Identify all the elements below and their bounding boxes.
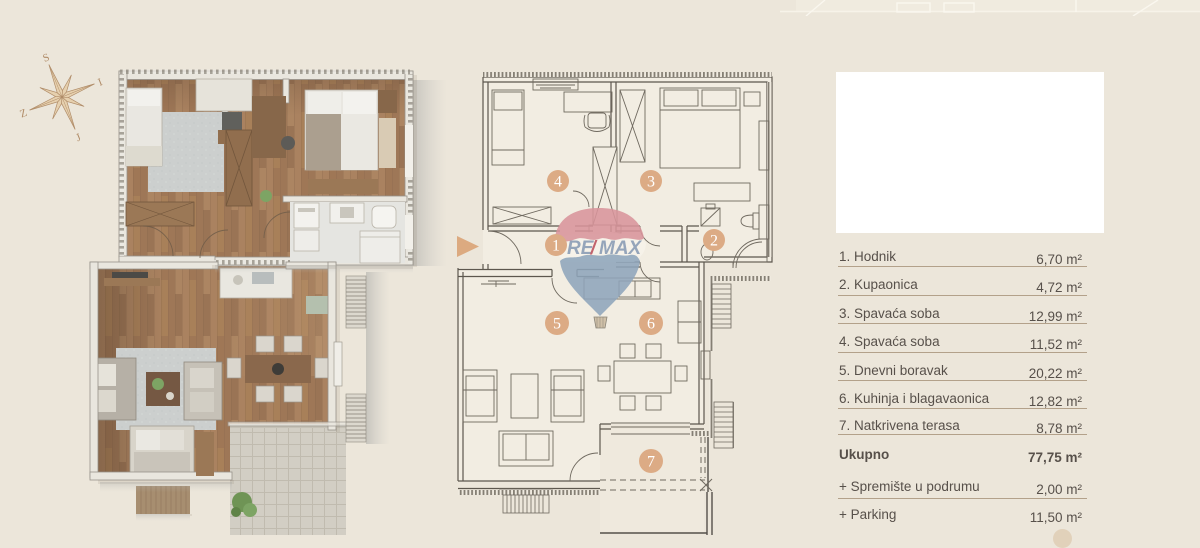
svg-text:3: 3: [647, 174, 655, 191]
svg-text:5: 5: [553, 316, 561, 333]
svg-text:Z: Z: [18, 107, 29, 121]
svg-text:J: J: [74, 131, 83, 144]
svg-text:7: 7: [647, 454, 655, 471]
svg-text:I: I: [96, 76, 104, 89]
svg-text:4: 4: [554, 174, 562, 191]
svg-text:MAX: MAX: [599, 238, 643, 259]
svg-text:2: 2: [710, 233, 718, 250]
svg-text:S: S: [41, 51, 51, 64]
svg-text:1: 1: [552, 238, 560, 255]
svg-text:6: 6: [647, 316, 655, 333]
